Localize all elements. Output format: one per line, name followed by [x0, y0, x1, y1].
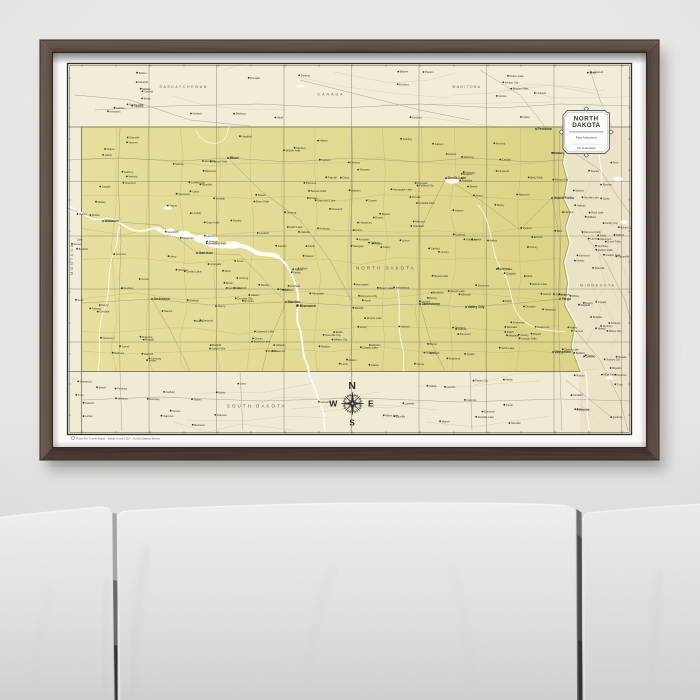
svg-text:Granmont: Granmont	[513, 320, 525, 324]
svg-text:Bowry: Bowry	[430, 296, 438, 300]
svg-text:Beadale: Beadale	[593, 315, 603, 319]
svg-text:Newner: Newner	[129, 140, 138, 144]
svg-text:Fairner Falls: Fairner Falls	[212, 159, 228, 163]
svg-text:Oakfield: Oakfield	[134, 104, 144, 108]
svg-text:Drawood: Drawood	[274, 349, 285, 353]
svg-text:Kenburg: Kenburg	[151, 357, 162, 361]
svg-text:Milck Falls: Milck Falls	[604, 373, 617, 377]
svg-text:Argate: Argate	[467, 352, 475, 356]
svg-text:Beaburg: Beaburg	[236, 112, 246, 116]
svg-text:Belner City: Belner City	[609, 329, 622, 333]
svg-text:Cargate: Cargate	[506, 271, 516, 275]
svg-text:Pardon: Pardon	[425, 70, 434, 74]
svg-text:Draburg: Draburg	[287, 210, 297, 214]
svg-text:Grangate: Grangate	[210, 262, 222, 266]
svg-text:Milth: Milth	[557, 229, 563, 233]
svg-text:Gardon: Gardon	[116, 106, 125, 110]
svg-text:Dundale: Dundale	[250, 76, 260, 80]
svg-text:Granfield: Granfield	[413, 224, 424, 228]
svg-text:Linth: Linth	[342, 362, 348, 366]
svg-text:Pembina: Pembina	[538, 127, 552, 131]
svg-text:Fairford City: Fairford City	[419, 184, 434, 188]
svg-text:Hampdale: Hampdale	[312, 292, 325, 296]
svg-text:Linfield City: Linfield City	[191, 180, 206, 184]
svg-text:Stanley: Stanley	[591, 169, 600, 173]
svg-text:Mardon: Mardon	[372, 343, 382, 347]
svg-text:Belfield: Belfield	[212, 343, 221, 347]
svg-text:Roville: Roville	[261, 283, 270, 287]
svg-text:Dunbury: Dunbury	[603, 324, 614, 328]
svg-text:Kenburg: Kenburg	[117, 387, 127, 391]
svg-text:Dunfield: Dunfield	[290, 284, 300, 288]
svg-text:Wilner: Wilner	[572, 294, 579, 298]
svg-text:Granry: Granry	[441, 250, 450, 254]
svg-text:Beaner: Beaner	[382, 212, 391, 216]
svg-text:Dunby: Dunby	[585, 301, 593, 305]
svg-text:Newsen: Newsen	[360, 168, 370, 172]
svg-text:Raymont: Raymont	[519, 193, 530, 197]
svg-text:Cendale: Cendale	[99, 310, 110, 314]
svg-text:Kenmont Falls: Kenmont Falls	[584, 230, 601, 234]
svg-text:Cenley Lake: Cenley Lake	[186, 269, 201, 273]
svg-text:Kenfield Falls: Kenfield Falls	[419, 201, 436, 205]
svg-text:CANADA: CANADA	[318, 93, 345, 97]
svg-text:Glengate: Glengate	[466, 237, 477, 241]
svg-text:Belville: Belville	[355, 306, 364, 310]
svg-text:Dunford: Dunford	[399, 82, 409, 86]
svg-text:Garford: Garford	[431, 247, 441, 251]
svg-text:Dunmore: Dunmore	[484, 410, 495, 414]
svg-text:Wilsen City: Wilsen City	[334, 338, 348, 342]
svg-text:Lanry: Lanry	[240, 382, 247, 386]
svg-text:Rock Lake: Rock Lake	[591, 211, 604, 215]
svg-text:Kenfield: Kenfield	[573, 393, 583, 397]
svg-text:Lanfield: Lanfield	[405, 401, 415, 405]
svg-text:Verdon: Verdon	[209, 240, 218, 244]
svg-text:Push Pin Travel Maps · Made in: Push Pin Travel Maps · Made in the USA ·…	[76, 437, 161, 441]
svg-text:Roth: Roth	[613, 161, 619, 165]
svg-text:Granmore: Granmore	[537, 325, 550, 329]
svg-text:Granby: Granby	[79, 213, 88, 216]
svg-text:Cenbury: Cenbury	[613, 415, 624, 419]
svg-text:Garry: Garry	[343, 176, 350, 180]
svg-text:Halley: Halley	[490, 239, 498, 243]
svg-text:Glenson: Glenson	[455, 326, 466, 330]
svg-text:Rosen City: Rosen City	[475, 379, 488, 383]
svg-text:Stanmont Lake: Stanmont Lake	[317, 198, 336, 202]
svg-text:Elmore: Elmore	[534, 235, 543, 239]
svg-text:Yet to Explore: Yet to Explore	[577, 146, 596, 150]
svg-text:Carmore: Carmore	[467, 398, 478, 402]
svg-text:Newmont: Newmont	[182, 236, 194, 240]
svg-text:Oakville: Oakville	[301, 230, 311, 234]
svg-text:Elville: Elville	[336, 330, 344, 334]
svg-text:Fairry: Fairry	[355, 228, 363, 232]
svg-text:Hampley: Hampley	[149, 397, 160, 401]
svg-text:Elmont Lake: Elmont Lake	[367, 316, 382, 320]
svg-text:Grand Forks: Grand Forks	[554, 196, 574, 200]
svg-text:Linmore: Linmore	[500, 267, 510, 271]
svg-text:E: E	[368, 399, 374, 409]
svg-text:Carby: Carby	[192, 189, 200, 193]
svg-text:Arson: Arson	[476, 194, 484, 198]
svg-text:Marth: Marth	[226, 281, 233, 285]
svg-text:Carck: Carck	[506, 403, 513, 407]
svg-text:Kendale: Kendale	[359, 237, 369, 241]
svg-text:Hampbury: Hampbury	[360, 221, 373, 225]
svg-text:Rodon: Rodon	[92, 213, 100, 217]
svg-text:Lanwood: Lanwood	[498, 169, 509, 173]
svg-text:Turck: Turck	[600, 234, 607, 238]
svg-text:Beaner: Beaner	[400, 70, 409, 74]
svg-text:Dramore: Dramore	[142, 335, 153, 339]
svg-text:Harford: Harford	[401, 325, 410, 329]
svg-text:Verley: Verley	[293, 270, 301, 274]
svg-text:Kenbury: Kenbury	[123, 286, 134, 290]
svg-text:Verck: Verck	[78, 299, 85, 302]
svg-text:Marner: Marner	[442, 419, 450, 423]
svg-text:Arson: Arson	[237, 259, 245, 263]
svg-text:Harson: Harson	[207, 234, 216, 238]
svg-text:Stanville: Stanville	[595, 266, 605, 270]
svg-text:Dunmont: Dunmont	[460, 332, 471, 336]
svg-text:Hampson: Hampson	[600, 237, 612, 241]
svg-text:Wilner: Wilner	[300, 267, 308, 271]
svg-text:Lanville: Lanville	[447, 385, 456, 389]
svg-text:Dunmore City: Dunmore City	[361, 294, 378, 298]
svg-text:Carby: Carby	[603, 197, 611, 201]
svg-text:Kenbury: Kenbury	[412, 115, 422, 119]
svg-text:Granwood: Granwood	[80, 380, 93, 384]
svg-text:Williston: Williston	[105, 219, 119, 223]
svg-text:Halth Lake: Halth Lake	[289, 225, 302, 229]
svg-text:Verfield: Verfield	[128, 175, 137, 179]
svg-text:Granton: Granton	[617, 373, 627, 377]
svg-text:Fargo: Fargo	[562, 297, 571, 301]
svg-text:Harth: Harth	[277, 116, 284, 120]
svg-text:Carby: Carby	[383, 245, 391, 249]
svg-text:NORTH DAKOTA: NORTH DAKOTA	[356, 266, 416, 271]
svg-text:Kensen: Kensen	[74, 243, 83, 246]
svg-text:Bismarck: Bismarck	[300, 304, 316, 308]
svg-text:Granbury: Granbury	[449, 357, 461, 361]
svg-text:Harth: Harth	[364, 298, 371, 302]
svg-text:Mandan: Mandan	[288, 300, 301, 304]
svg-text:Garrison: Garrison	[199, 251, 213, 255]
svg-text:Verner City: Verner City	[228, 286, 242, 290]
svg-text:Linton: Linton	[402, 238, 410, 242]
svg-text:Carsen: Carsen	[498, 94, 507, 98]
svg-text:Kenburg: Kenburg	[320, 226, 331, 230]
svg-text:Verth Lake: Verth Lake	[501, 346, 514, 350]
svg-text:Carsen: Carsen	[368, 199, 377, 203]
svg-text:Kenton City: Kenton City	[505, 80, 519, 84]
svg-text:Turner: Turner	[122, 344, 130, 348]
svg-text:Oaksen: Oaksen	[577, 203, 586, 207]
svg-text:Belner: Belner	[430, 342, 438, 346]
svg-text:Halsen: Halsen	[194, 397, 203, 401]
svg-text:Dunmore: Dunmore	[478, 283, 490, 287]
svg-text:Lingate: Lingate	[102, 185, 111, 189]
svg-text:Parwood: Parwood	[332, 207, 343, 211]
svg-text:Devils Lake: Devils Lake	[448, 176, 467, 180]
svg-text:Newville: Newville	[511, 421, 521, 425]
svg-text:Wilmore: Wilmore	[461, 292, 471, 296]
svg-text:Carfield: Carfield	[144, 89, 153, 93]
svg-text:Carburg: Carburg	[455, 232, 465, 236]
svg-text:Garson: Garson	[435, 142, 444, 146]
svg-text:Verville Lake: Verville Lake	[584, 195, 599, 199]
svg-text:Harsen: Harsen	[455, 208, 464, 212]
svg-text:Linmore: Linmore	[350, 161, 360, 165]
svg-text:Marby: Marby	[506, 378, 514, 382]
svg-text:Verdale: Verdale	[216, 196, 226, 200]
svg-text:Belner: Belner	[99, 385, 107, 389]
svg-text:Garburg: Garburg	[555, 151, 565, 155]
svg-text:Turville: Turville	[412, 195, 421, 199]
svg-text:Halck: Halck	[505, 299, 512, 303]
svg-text:Halgate: Halgate	[276, 343, 286, 347]
svg-text:Verford: Verford	[523, 226, 532, 230]
svg-text:Gransen: Gransen	[217, 413, 228, 417]
svg-text:W: W	[329, 399, 338, 409]
svg-text:Newbury: Newbury	[118, 396, 129, 400]
svg-text:Tursen: Tursen	[172, 409, 181, 413]
svg-text:Bowbury: Bowbury	[433, 291, 444, 295]
svg-text:Kenry: Kenry	[101, 303, 109, 307]
svg-text:Bowck: Bowck	[533, 332, 542, 336]
svg-text:Oakner: Oakner	[371, 241, 380, 245]
svg-text:Draton: Draton	[349, 358, 358, 362]
svg-text:Rayth: Rayth	[432, 351, 440, 355]
svg-text:Parburg: Parburg	[114, 351, 124, 355]
svg-text:Halbury: Halbury	[124, 170, 134, 174]
svg-text:Belsen: Belsen	[258, 193, 267, 197]
svg-text:Lanson: Lanson	[590, 237, 599, 241]
svg-text:Beamont: Beamont	[205, 169, 216, 173]
svg-text:Mardon: Mardon	[321, 344, 331, 348]
svg-text:Verry: Verry	[170, 254, 177, 258]
svg-text:Halner: Halner	[448, 152, 456, 156]
svg-text:Vermore: Vermore	[116, 252, 127, 256]
svg-text:Belner: Belner	[470, 185, 478, 189]
svg-text:Kenmont: Kenmont	[579, 254, 590, 258]
svg-text:Parbury: Parbury	[301, 74, 311, 78]
svg-text:Kenwood: Kenwood	[178, 192, 190, 196]
svg-text:Romore: Romore	[244, 299, 254, 303]
svg-text:Beack Falls: Beack Falls	[434, 274, 449, 278]
svg-text:Kenford: Kenford	[193, 112, 203, 116]
svg-text:Stanck: Stanck	[164, 309, 173, 313]
svg-text:Granry: Granry	[530, 245, 539, 249]
svg-text:Arbury City: Arbury City	[555, 178, 569, 182]
svg-text:Garner: Garner	[543, 292, 551, 296]
svg-text:Marley: Marley	[98, 200, 107, 204]
svg-text:Valley City: Valley City	[468, 305, 485, 309]
svg-text:Wilville Falls: Wilville Falls	[286, 148, 301, 152]
svg-text:Drary Falls: Drary Falls	[206, 221, 220, 225]
svg-text:Oakson: Oakson	[561, 292, 571, 296]
svg-text:Turmore: Turmore	[574, 329, 584, 333]
svg-text:Dunck: Dunck	[375, 216, 383, 220]
svg-text:Newgate: Newgate	[353, 244, 364, 248]
svg-text:Gardale: Gardale	[189, 298, 199, 302]
svg-text:Kenby City: Kenby City	[605, 221, 618, 225]
svg-text:Halsen Lake: Halsen Lake	[532, 282, 547, 286]
svg-text:Rock: Rock	[225, 269, 232, 273]
svg-text:Granbury: Granbury	[598, 244, 610, 248]
svg-text:Past Adventure: Past Adventure	[576, 136, 597, 140]
svg-text:Lanley: Lanley	[85, 414, 93, 418]
svg-text:Jamestown: Jamestown	[422, 302, 440, 306]
svg-text:Milner Lake: Milner Lake	[385, 413, 399, 417]
svg-text:Stanby: Stanby	[175, 162, 184, 166]
svg-text:Granford: Granford	[125, 181, 136, 185]
svg-text:Garck: Garck	[105, 153, 113, 157]
svg-text:Granry: Granry	[255, 337, 264, 341]
svg-text:Verford: Verford	[575, 189, 584, 193]
svg-text:Turry: Turry	[617, 382, 624, 386]
svg-text:Lingate: Lingate	[598, 300, 607, 304]
svg-text:Wilfield: Wilfield	[587, 215, 596, 219]
svg-text:Hampson: Hampson	[110, 109, 122, 113]
svg-text:Dunley: Dunley	[233, 219, 242, 223]
svg-text:Beamore: Beamore	[194, 423, 205, 427]
svg-text:Milford: Milford	[616, 233, 624, 237]
svg-text:Verner: Verner	[417, 362, 425, 366]
svg-text:Granry: Granry	[520, 333, 529, 337]
svg-text:Verburg: Verburg	[239, 276, 249, 280]
svg-text:Stanford: Stanford	[138, 80, 148, 84]
svg-text:Garford: Garford	[85, 401, 94, 405]
svg-text:Parmont: Parmont	[306, 181, 316, 185]
svg-text:Harwood: Harwood	[545, 308, 556, 312]
svg-text:Bowth: Bowth	[144, 97, 152, 101]
svg-text:Hardon: Hardon	[565, 210, 574, 214]
svg-text:Wilmore: Wilmore	[178, 268, 188, 272]
svg-text:Hampwood: Hampwood	[396, 286, 410, 290]
svg-text:Drath: Drath	[507, 330, 514, 334]
svg-text:N: N	[348, 381, 356, 392]
svg-text:Oakth Falls: Oakth Falls	[212, 347, 226, 351]
svg-text:Cenck: Cenck	[141, 277, 149, 281]
svg-text:Milck: Milck	[526, 274, 533, 278]
svg-text:Newby: Newby	[577, 259, 586, 263]
svg-text:Wahpeton: Wahpeton	[555, 350, 571, 354]
svg-text:Stanville: Stanville	[129, 136, 140, 140]
svg-text:Lanson Falls: Lanson Falls	[521, 336, 537, 340]
svg-text:Linwood: Linwood	[536, 91, 546, 95]
svg-text:Belfield: Belfield	[576, 351, 585, 355]
svg-text:Carfield: Carfield	[166, 390, 175, 394]
svg-text:Oakby: Oakby	[429, 384, 437, 388]
svg-text:Stanry: Stanry	[218, 304, 226, 308]
svg-text:Hampdale: Hampdale	[356, 282, 369, 286]
svg-text:Beadon: Beadon	[280, 287, 290, 291]
svg-text:Robury: Robury	[576, 373, 585, 377]
svg-text:Granford: Granford	[167, 230, 178, 234]
svg-text:Halson: Halson	[320, 139, 329, 143]
svg-text:Bowdale: Bowdale	[507, 325, 518, 329]
svg-text:Belry Falls: Belry Falls	[530, 176, 543, 180]
svg-text:Belley: Belley	[497, 203, 505, 207]
svg-text:Draton Lake: Draton Lake	[510, 74, 525, 78]
svg-text:S: S	[349, 418, 355, 427]
svg-text:Newfield: Newfield	[242, 134, 253, 138]
svg-text:Dundale Lake: Dundale Lake	[478, 415, 495, 419]
svg-text:SOUTH DAKOTA: SOUTH DAKOTA	[227, 404, 287, 409]
svg-text:Wilson: Wilson	[107, 147, 116, 151]
svg-text:Dunbury: Dunbury	[586, 355, 597, 359]
svg-text:Bowner Falls: Bowner Falls	[311, 189, 327, 193]
svg-text:Carth: Carth	[77, 238, 84, 241]
svg-text:Romore: Romore	[603, 183, 613, 187]
svg-text:Haldon: Haldon	[251, 293, 260, 297]
svg-text:Kenth: Kenth	[308, 244, 316, 248]
svg-text:Dundale: Dundale	[526, 305, 537, 309]
svg-text:Bowry Lake: Bowry Lake	[379, 286, 394, 290]
svg-text:Belley: Belley	[218, 390, 226, 394]
svg-text:Cenmore Lake: Cenmore Lake	[257, 330, 275, 334]
svg-text:DAKOTA: DAKOTA	[572, 122, 600, 129]
svg-text:Verby: Verby	[360, 325, 368, 329]
svg-text:Oakton: Oakton	[305, 254, 314, 258]
svg-text:Beack: Beack	[589, 71, 597, 75]
svg-text:Harford: Harford	[144, 352, 153, 356]
svg-text:Fairville: Fairville	[328, 175, 338, 179]
svg-text:Gardon: Gardon	[278, 244, 287, 248]
svg-text:MANITOBA: MANITOBA	[453, 85, 482, 89]
svg-text:Lanfield: Lanfield	[259, 231, 269, 235]
svg-text:Elsen Falls: Elsen Falls	[256, 200, 270, 204]
svg-text:Hampgate Lake: Hampgate Lake	[393, 187, 412, 191]
svg-text:Bowfield: Bowfield	[79, 248, 89, 251]
svg-text:Rodale: Rodale	[618, 355, 627, 359]
svg-text:Garwood: Garwood	[202, 318, 213, 322]
svg-text:SASKATCHEWAN: SASKATCHEWAN	[160, 85, 208, 89]
svg-text:Fairsen: Fairsen	[321, 158, 330, 162]
svg-text:Turry: Turry	[78, 393, 85, 397]
svg-text:Oakdon: Oakdon	[351, 188, 361, 192]
svg-text:Carford: Carford	[502, 158, 511, 162]
svg-text:Parwood: Parwood	[579, 407, 590, 411]
svg-text:Minot: Minot	[230, 156, 240, 160]
svg-text:Beadon Falls: Beadon Falls	[513, 87, 529, 91]
svg-text:Belson: Belson	[139, 71, 147, 75]
svg-text:Granley: Granley	[403, 137, 413, 141]
svg-text:Lindale: Lindale	[192, 211, 201, 215]
svg-text:Turton: Turton	[169, 204, 177, 208]
svg-text:Kenford: Kenford	[496, 141, 506, 145]
svg-text:Dickinson: Dickinson	[154, 297, 170, 301]
svg-text:Oakmore: Oakmore	[163, 414, 174, 418]
svg-text:Granmont: Granmont	[103, 336, 115, 340]
svg-text:Bowdon: Bowdon	[612, 366, 622, 370]
svg-text:Marburg: Marburg	[464, 155, 475, 159]
svg-text:Milmont: Milmont	[415, 220, 425, 224]
svg-text:Dunton Falls: Dunton Falls	[598, 248, 613, 252]
svg-text:Carley: Carley	[523, 115, 531, 119]
svg-text:MINNESOTA: MINNESOTA	[580, 284, 616, 288]
svg-text:Cardon Lake: Cardon Lake	[606, 253, 621, 257]
svg-text:Halton: Halton	[371, 363, 379, 367]
